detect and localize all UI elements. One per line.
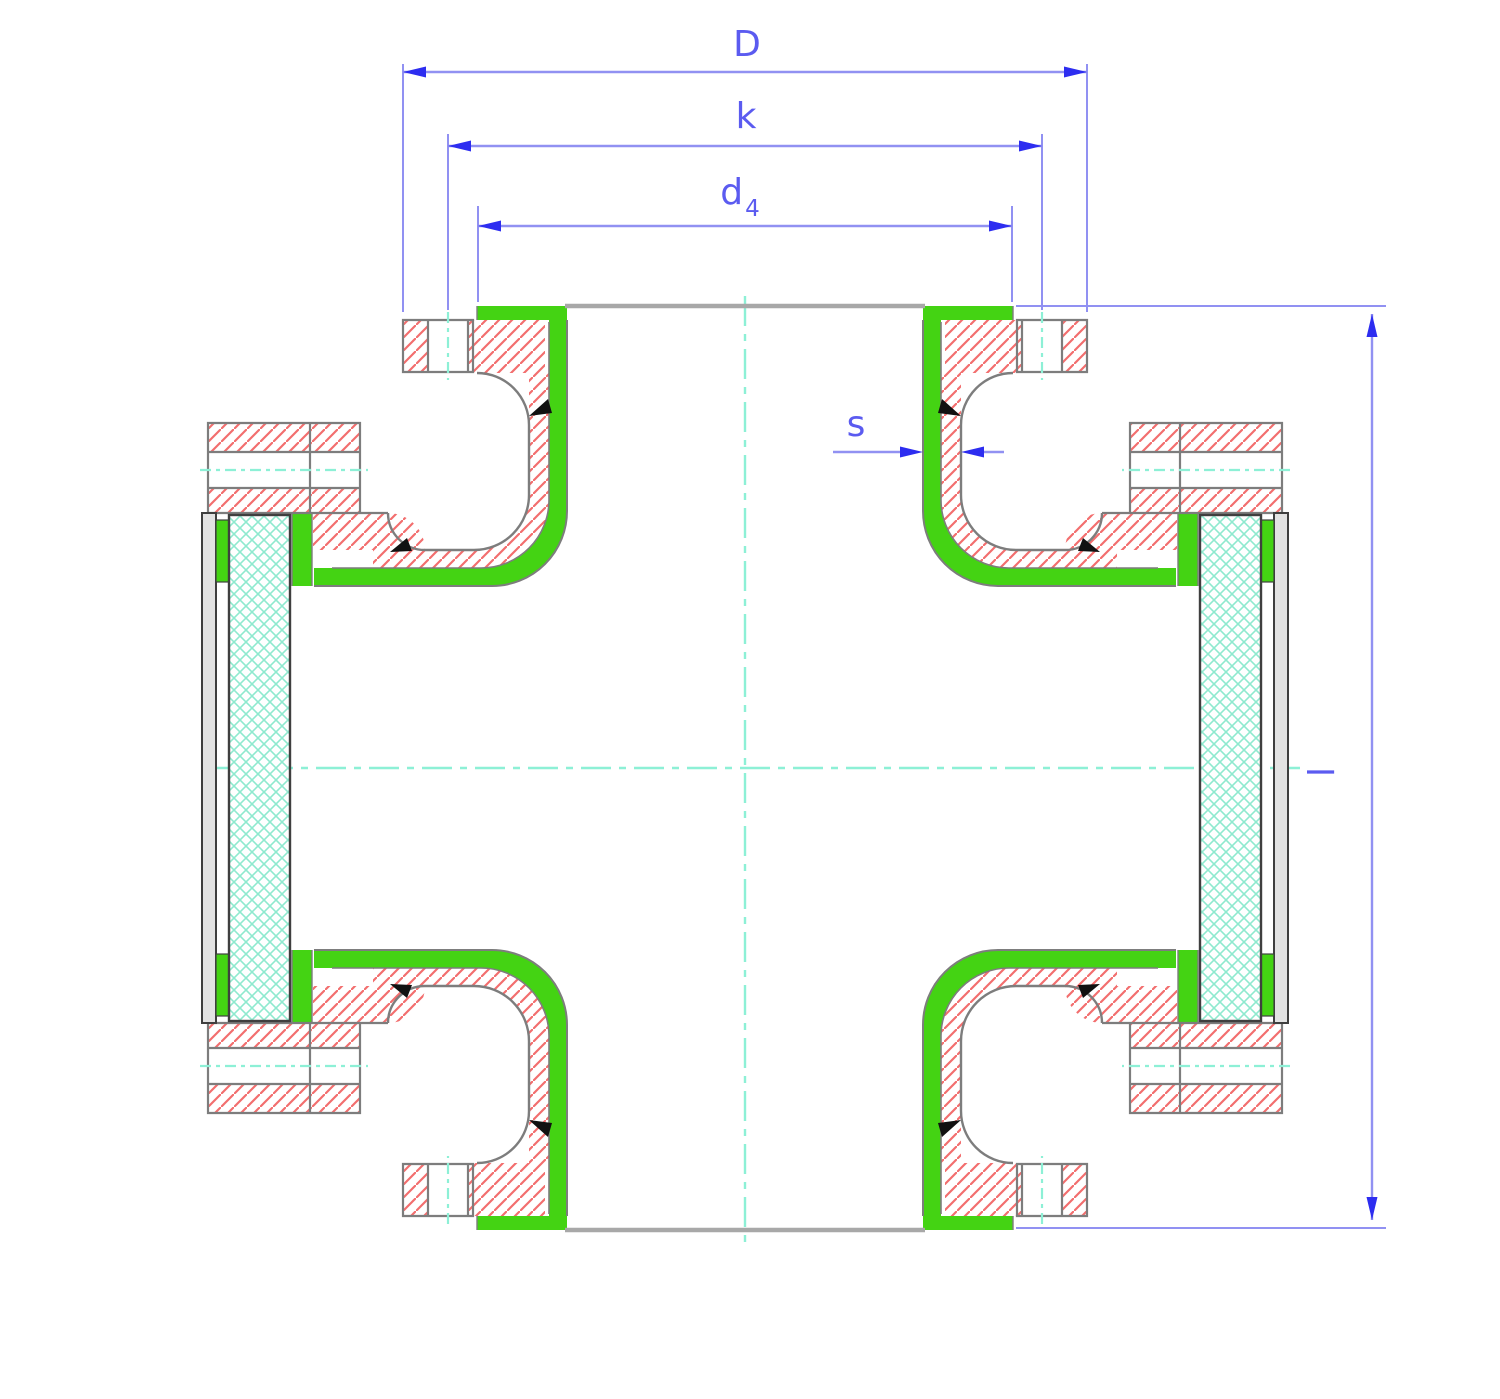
dimension-l-label: l — [1302, 767, 1343, 777]
dimension-s-label: s — [847, 404, 866, 445]
left-cover-disc — [202, 513, 290, 1023]
dimension-k-label: k — [736, 96, 757, 137]
dimension-D-label: D — [733, 24, 761, 65]
cross-fitting-section-svg: D k d4 s l — [0, 0, 1500, 1399]
engineering-drawing-canvas: D k d4 s l — [0, 0, 1500, 1399]
right-cover-disc — [1200, 513, 1288, 1023]
